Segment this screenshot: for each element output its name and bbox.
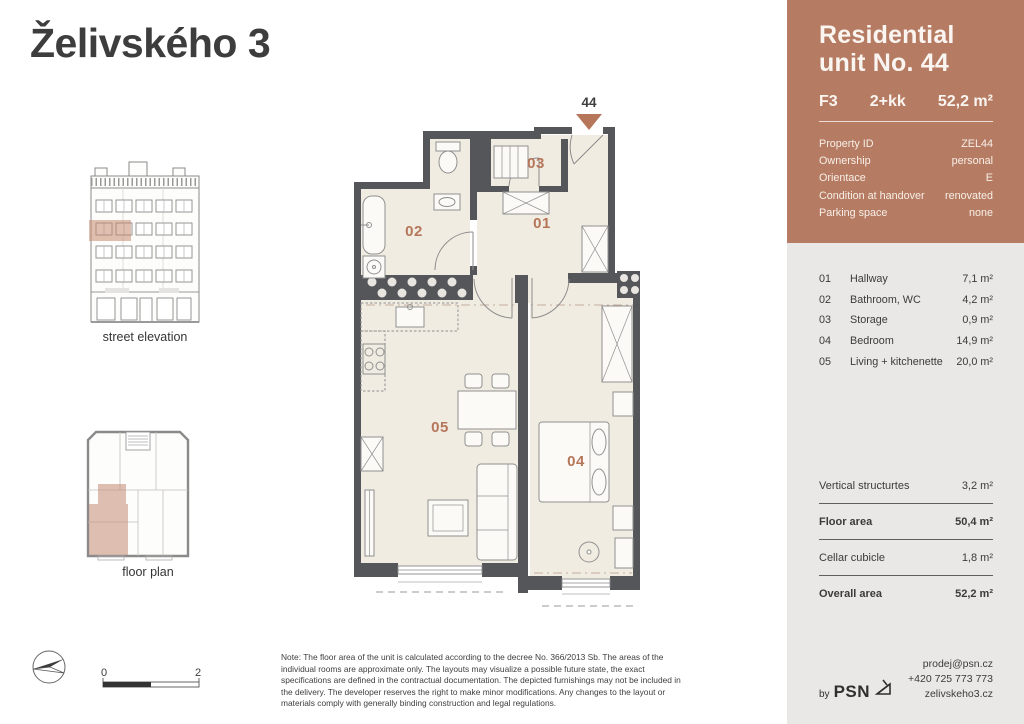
area-row: Overall area 52,2 m²: [819, 576, 993, 611]
unit-summary: F3 2+kk 52,2 m²: [819, 93, 993, 111]
property-label: Condition at handover: [819, 188, 925, 205]
area-label: Overall area: [819, 588, 882, 600]
property-row: Property ID ZEL44: [819, 136, 993, 153]
unit-disposition: 2+kk: [870, 93, 906, 111]
property-value: personal: [952, 153, 993, 170]
scale-end: 2: [195, 667, 201, 679]
area-value: 52,2 m²: [955, 588, 993, 600]
room-row: 01 Hallway 7,1 m²: [819, 269, 993, 290]
room-name: Hallway: [850, 269, 962, 290]
area-label: Vertical structurtes: [819, 480, 909, 492]
room-row: 04 Bedroom 14,9 m²: [819, 331, 993, 352]
scale-start: 0: [101, 667, 107, 679]
north-arrow-icon: [28, 646, 70, 688]
street-elevation-drawing: [85, 136, 205, 332]
brand-logo: by PSN: [819, 679, 892, 702]
unit-type: F3: [819, 93, 838, 111]
room-name: Bathroom, WC: [850, 290, 962, 311]
property-label: Property ID: [819, 136, 874, 153]
contact-website: zelivskeho3.cz: [908, 687, 993, 702]
property-label: Parking space: [819, 205, 887, 222]
area-row: Cellar cubicle 1,8 m²: [819, 540, 993, 576]
room-list: 01 Hallway 7,1 m² 02 Bathroom, WC 4,2 m²…: [819, 269, 993, 373]
area-row: Floor area 50,4 m²: [819, 504, 993, 540]
room-label-02: 02: [405, 223, 423, 240]
room-area: 20,0 m²: [956, 352, 993, 373]
floor-plan-thumbnail: [82, 428, 194, 562]
unit-info-sidebar: Residential unit No. 44 F3 2+kk 52,2 m² …: [787, 0, 1024, 724]
room-label-01: 01: [533, 215, 551, 232]
brand-by: by: [819, 689, 830, 700]
room-area: 7,1 m²: [962, 269, 993, 290]
main-floor-plan: 44: [336, 86, 668, 658]
scale-bar: 0 2: [96, 664, 206, 694]
room-name: Living + kitchenette: [850, 352, 956, 373]
disclaimer-note: Note: The floor area of the unit is calc…: [281, 652, 693, 710]
entrance-triangle-icon: [576, 114, 602, 130]
room-row: 02 Bathroom, WC 4,2 m²: [819, 290, 993, 311]
room-number: 02: [819, 290, 850, 311]
elevation-unit-highlight: [89, 220, 131, 241]
contact-info: prodej@psn.cz +420 725 773 773 zelivskeh…: [908, 657, 993, 702]
area-row: Vertical structurtes 3,2 m²: [819, 468, 993, 504]
psn-scaffold-icon: [874, 679, 892, 697]
contact-email: prodej@psn.cz: [908, 657, 993, 672]
room-label-03: 03: [527, 155, 545, 172]
page-title: Želivského 3: [30, 20, 270, 67]
property-value: ZEL44: [961, 136, 993, 153]
room-area: 0,9 m²: [962, 310, 993, 331]
area-label: Cellar cubicle: [819, 552, 885, 564]
property-label: Ownership: [819, 153, 871, 170]
contact-phone: +420 725 773 773: [908, 672, 993, 687]
property-value: E: [986, 170, 993, 187]
room-area: 4,2 m²: [962, 290, 993, 311]
property-row: Condition at handover renovated: [819, 188, 993, 205]
room-number: 01: [819, 269, 850, 290]
room-name: Storage: [850, 310, 962, 331]
property-row: Parking space none: [819, 205, 993, 222]
unit-title: Residential unit No. 44: [819, 21, 993, 77]
property-row: Orientace E: [819, 170, 993, 187]
property-row: Ownership personal: [819, 153, 993, 170]
area-summary-list: Vertical structurtes 3,2 m² Floor area 5…: [819, 468, 993, 611]
sidebar-footer: by PSN prodej@psn.cz +420 725 773 773 ze…: [819, 657, 993, 702]
room-area: 14,9 m²: [956, 331, 993, 352]
area-value: 50,4 m²: [955, 516, 993, 528]
unit-area: 52,2 m²: [938, 93, 993, 111]
floor-plan-label: floor plan: [58, 565, 238, 579]
property-value: renovated: [945, 188, 993, 205]
area-label: Floor area: [819, 516, 872, 528]
room-number: 03: [819, 310, 850, 331]
street-elevation-label: street elevation: [55, 330, 235, 344]
room-name: Bedroom: [850, 331, 956, 352]
area-value: 3,2 m²: [962, 480, 993, 492]
hero-panel: Residential unit No. 44 F3 2+kk 52,2 m² …: [787, 0, 1024, 243]
room-row: 03 Storage 0,9 m²: [819, 310, 993, 331]
room-row: 05 Living + kitchenette 20,0 m²: [819, 352, 993, 373]
room-label-05: 05: [431, 419, 449, 436]
room-label-04: 04: [567, 453, 585, 470]
room-number: 05: [819, 352, 850, 373]
area-value: 1,8 m²: [962, 552, 993, 564]
property-value: none: [969, 205, 993, 222]
hero-divider: [819, 121, 993, 122]
property-label: Orientace: [819, 170, 866, 187]
room-number: 04: [819, 331, 850, 352]
unit-entrance-number: 44: [581, 95, 597, 110]
brand-name: PSN: [834, 682, 870, 702]
